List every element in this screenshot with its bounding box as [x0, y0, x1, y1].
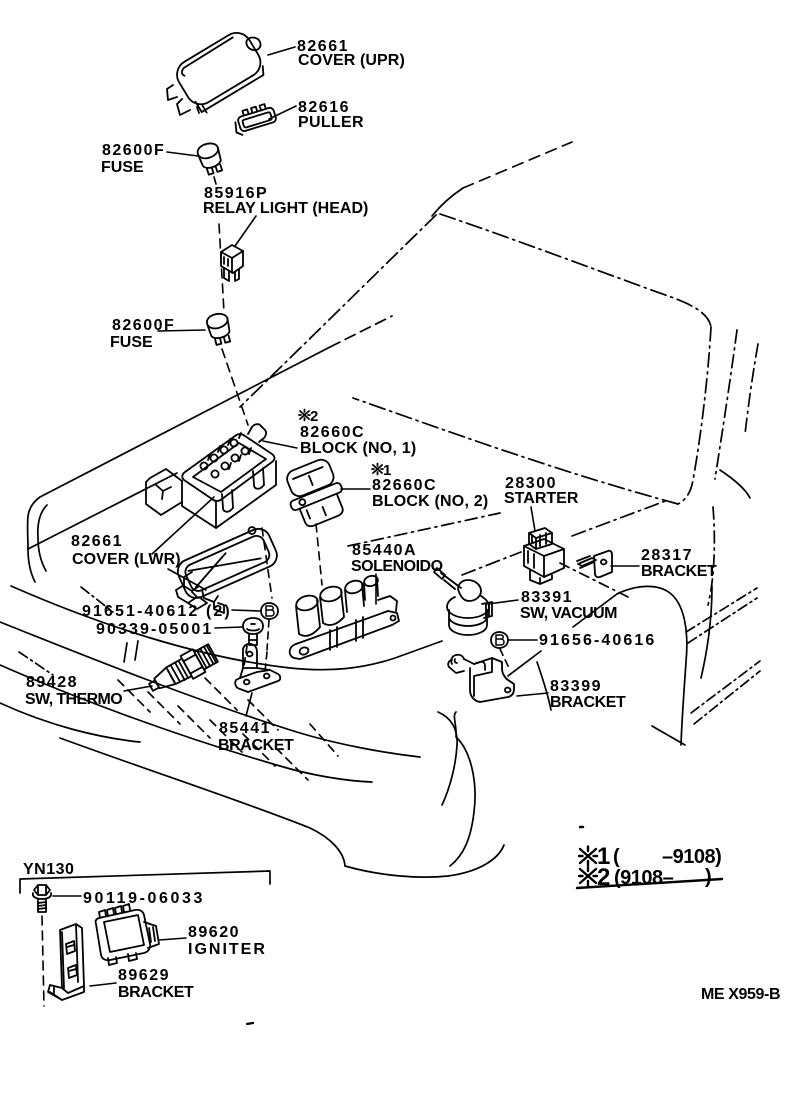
svg-text:YN130: YN130 [23, 861, 74, 878]
svg-text:IGNITER: IGNITER [188, 941, 267, 958]
svg-text:STARTER: STARTER [504, 490, 579, 507]
svg-text:BRACKET: BRACKET [218, 737, 294, 754]
svg-text:BLOCK (NO, 2): BLOCK (NO, 2) [372, 493, 488, 510]
svg-text:BRACKET: BRACKET [641, 563, 717, 580]
svg-text:): ) [705, 866, 712, 888]
svg-text:82661: 82661 [71, 533, 123, 550]
svg-text:SW, VACUUM: SW, VACUUM [520, 605, 617, 622]
svg-text:91656-40616: 91656-40616 [539, 632, 656, 649]
svg-text:BLOCK (NO, 1): BLOCK (NO, 1) [300, 440, 416, 457]
svg-text:89629: 89629 [118, 967, 170, 984]
svg-text:85440A: 85440A [352, 542, 417, 559]
svg-text:82660C: 82660C [300, 424, 365, 441]
svg-text:82600F: 82600F [112, 317, 175, 334]
svg-text:28317: 28317 [641, 547, 693, 564]
svg-text:89620: 89620 [188, 924, 240, 941]
svg-text:85441: 85441 [219, 720, 271, 737]
svg-text:PULLER: PULLER [298, 114, 364, 131]
svg-text:89428: 89428 [26, 674, 78, 691]
svg-text:82600F: 82600F [102, 142, 165, 159]
svg-text:ME X959-B: ME X959-B [701, 986, 780, 1003]
svg-text:FUSE: FUSE [101, 159, 144, 176]
svg-text:–9108): –9108) [662, 846, 721, 868]
svg-text:82660C: 82660C [372, 477, 437, 494]
svg-text:BRACKET: BRACKET [118, 984, 194, 1001]
svg-text:83391: 83391 [521, 589, 573, 606]
svg-text:83399: 83399 [550, 678, 602, 695]
svg-text:COVER (LWR): COVER (LWR) [72, 551, 181, 568]
svg-text:91651-40612 (2): 91651-40612 (2) [82, 603, 232, 620]
svg-text:SOLENOIDO: SOLENOIDO [351, 558, 443, 575]
svg-text:90119-06033: 90119-06033 [83, 890, 205, 907]
svg-text:FUSE: FUSE [110, 334, 153, 351]
svg-text:RELAY LIGHT (HEAD): RELAY LIGHT (HEAD) [203, 200, 368, 217]
svg-text:COVER (UPR): COVER (UPR) [298, 52, 405, 69]
svg-text:90339-05001: 90339-05001 [96, 621, 213, 638]
svg-text:2: 2 [310, 408, 320, 425]
svg-text:(: ( [613, 846, 620, 868]
svg-text:BRACKET: BRACKET [550, 694, 626, 711]
svg-text:SW, THERMO: SW, THERMO [25, 691, 122, 708]
